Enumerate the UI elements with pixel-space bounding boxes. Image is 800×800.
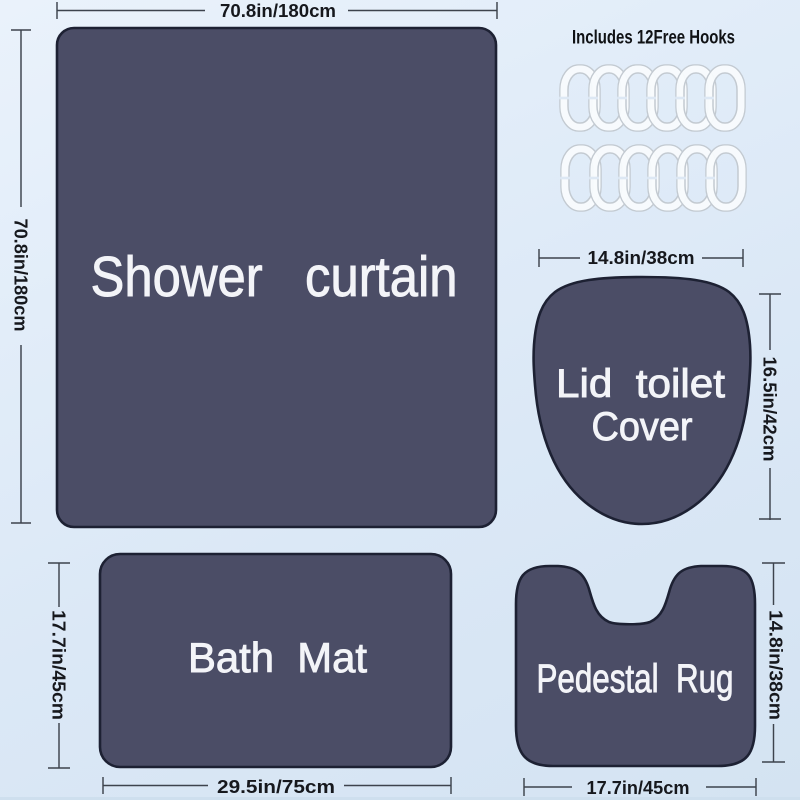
svg-text:70.8in/180cm: 70.8in/180cm: [11, 219, 31, 332]
svg-text:Lid toilet: Lid toilet: [556, 362, 725, 406]
svg-text:Pedestal Rug: Pedestal Rug: [537, 657, 734, 701]
svg-text:14.8in/38cm: 14.8in/38cm: [588, 248, 695, 268]
svg-text:Cover: Cover: [592, 405, 693, 449]
svg-text:70.8in/180cm: 70.8in/180cm: [220, 1, 336, 21]
svg-text:29.5in/75cm: 29.5in/75cm: [217, 777, 335, 797]
svg-text:17.7in/45cm: 17.7in/45cm: [49, 610, 69, 720]
svg-text:16.5in/42cm: 16.5in/42cm: [760, 357, 780, 462]
svg-text:14.8in/38cm: 14.8in/38cm: [766, 610, 786, 720]
svg-text:Bath Mat: Bath Mat: [188, 634, 367, 681]
svg-text:17.7in/45cm: 17.7in/45cm: [587, 778, 690, 798]
svg-text:Shower curtain: Shower curtain: [91, 245, 458, 309]
svg-text:Includes 12Free Hooks: Includes 12Free Hooks: [572, 28, 735, 49]
